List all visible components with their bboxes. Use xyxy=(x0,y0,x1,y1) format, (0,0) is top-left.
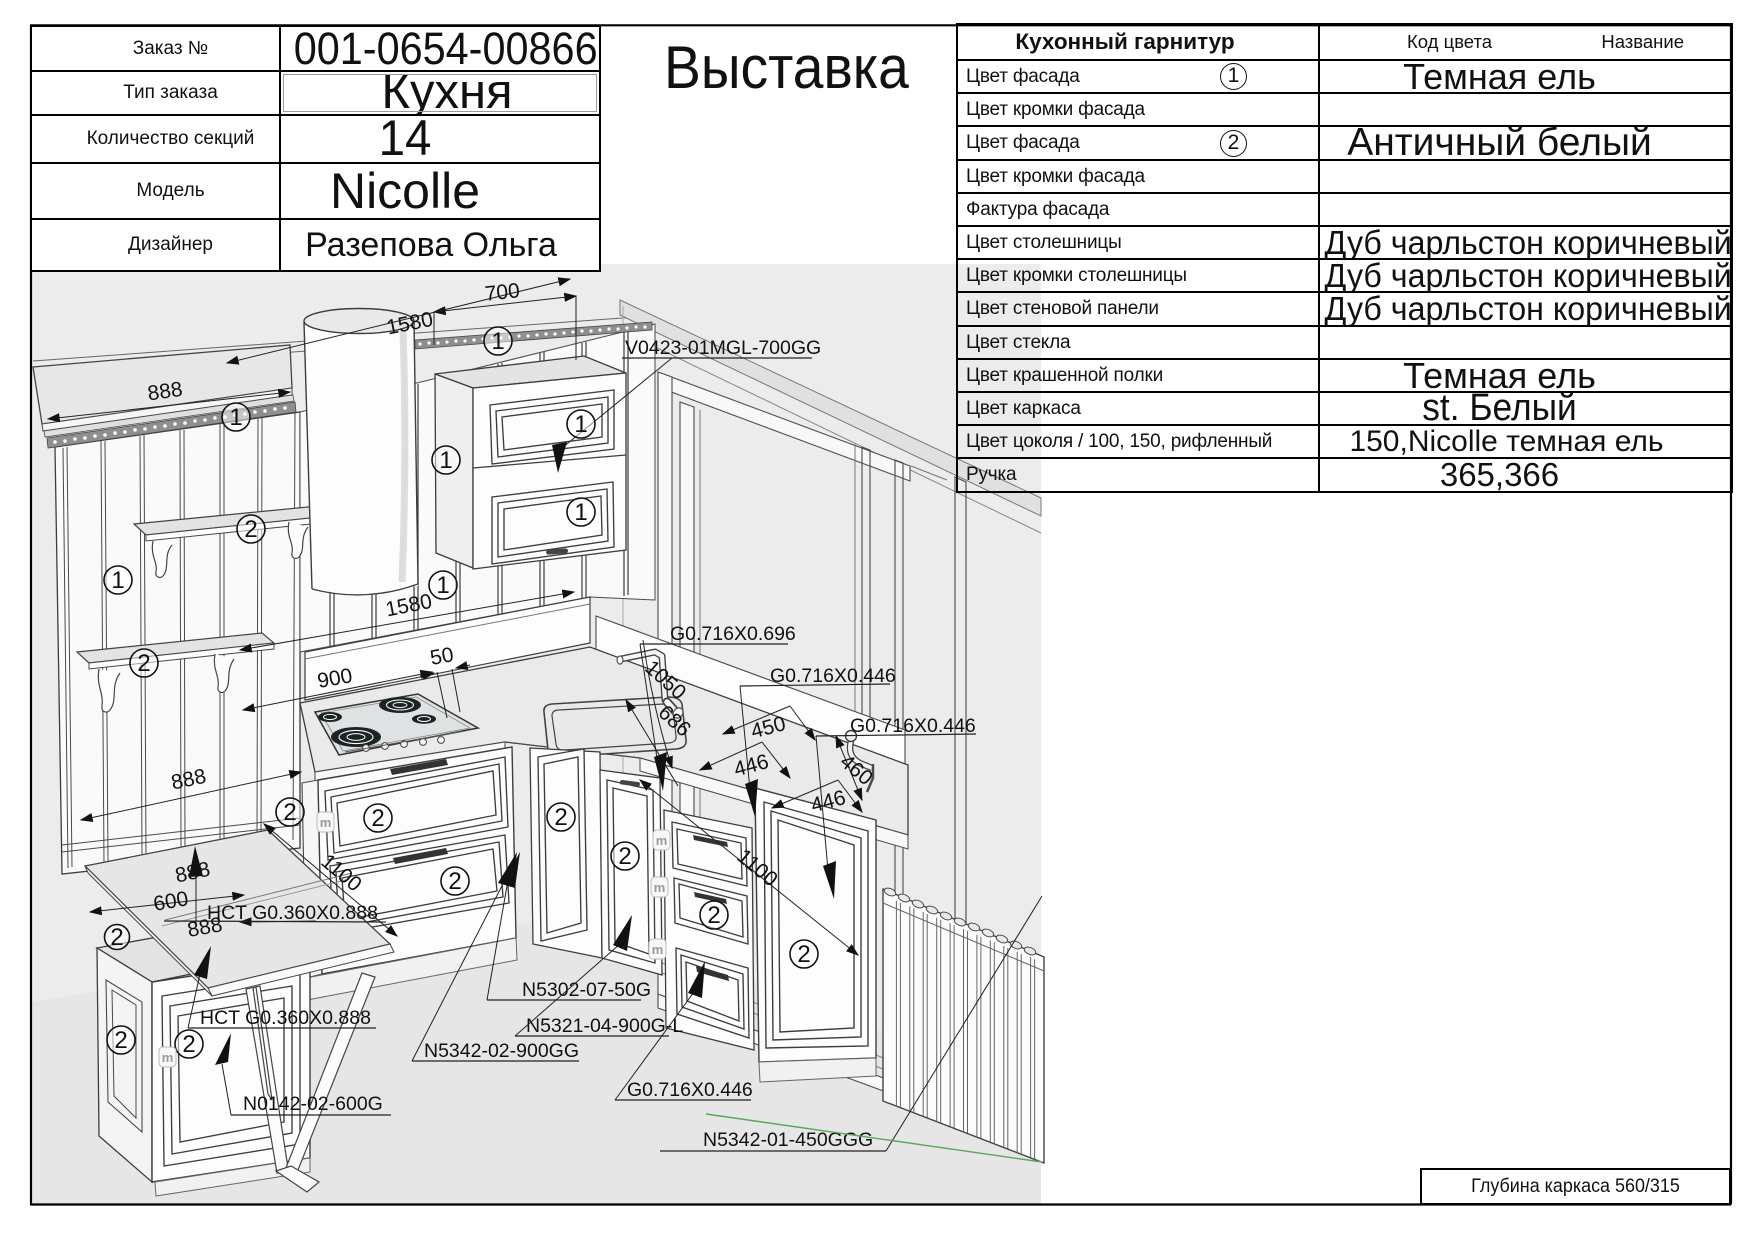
svg-text:m: m xyxy=(652,942,664,957)
svg-text:2: 2 xyxy=(114,1027,127,1054)
svg-text:50: 50 xyxy=(428,643,455,670)
svg-text:2: 2 xyxy=(283,799,296,826)
svg-text:1: 1 xyxy=(574,499,587,526)
svg-text:2: 2 xyxy=(110,924,123,951)
svg-text:HCT G0.360X0.888: HCT G0.360X0.888 xyxy=(207,902,378,924)
svg-text:1: 1 xyxy=(229,404,242,431)
svg-text:1: 1 xyxy=(111,567,124,594)
svg-text:2: 2 xyxy=(618,843,631,870)
svg-text:m: m xyxy=(654,880,666,895)
svg-text:m: m xyxy=(320,815,332,830)
svg-text:2: 2 xyxy=(371,805,384,832)
svg-text:m: m xyxy=(656,833,668,848)
svg-text:N0142-02-600G: N0142-02-600G xyxy=(243,1093,383,1115)
svg-text:888: 888 xyxy=(146,378,184,406)
svg-text:G0.716X0.446: G0.716X0.446 xyxy=(627,1079,753,1101)
svg-text:2: 2 xyxy=(244,516,257,543)
svg-text:1: 1 xyxy=(439,447,452,474)
svg-text:HCT G0.360X0.888: HCT G0.360X0.888 xyxy=(200,1007,371,1029)
svg-text:N5321-04-900G-L: N5321-04-900G-L xyxy=(526,1015,683,1037)
svg-text:V0423-01MGL-700GG: V0423-01MGL-700GG xyxy=(625,337,821,359)
svg-text:2: 2 xyxy=(448,868,461,895)
svg-text:2: 2 xyxy=(182,1031,195,1058)
svg-text:1: 1 xyxy=(436,572,449,599)
svg-text:N5302-07-50G: N5302-07-50G xyxy=(522,979,651,1001)
svg-text:2: 2 xyxy=(554,804,567,831)
svg-text:N5342-02-900GG: N5342-02-900GG xyxy=(424,1040,579,1062)
svg-text:1: 1 xyxy=(491,328,504,355)
svg-text:2: 2 xyxy=(707,902,720,929)
svg-text:N5342-01-450GGG: N5342-01-450GGG xyxy=(703,1129,873,1151)
svg-text:G0.716X0.696: G0.716X0.696 xyxy=(670,623,796,645)
svg-text:2: 2 xyxy=(137,650,150,677)
svg-text:m: m xyxy=(162,1050,174,1065)
svg-text:2: 2 xyxy=(797,941,810,968)
svg-text:1: 1 xyxy=(574,411,587,438)
